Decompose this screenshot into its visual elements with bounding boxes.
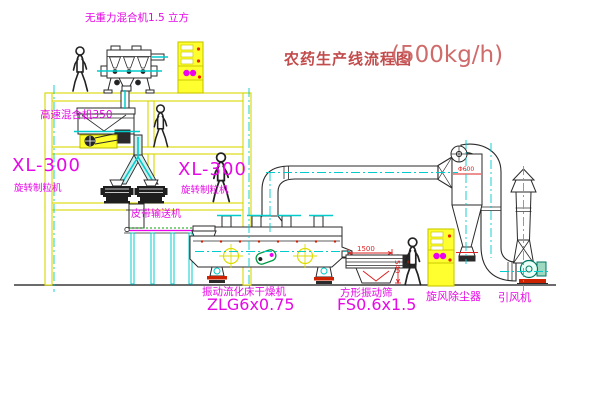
control-cabinet-right [428,229,454,286]
label-no-gravity-mixer: 无重力混合机1.5 立方 [85,13,189,24]
cad-flow-diagram: 农药生产线流程图 (500kg/h) 无重力混合机1.5 立方 高速混合机350… [0,0,600,403]
label-granulator-left-name: 旋转制粒机 [14,184,62,194]
label-granulator-right-name: 旋转制粒机 [181,186,229,196]
person-figure [73,47,88,91]
diagram-title-capacity: (500kg/h) [391,44,503,67]
label-fan: 引风机 [498,292,531,303]
label-sieve-model: FS0.6x1.5 [337,297,416,313]
person-figure [154,105,168,147]
vibrating-sieve-drawing [342,249,416,283]
label-dryer-model: ZLG6x0.75 [207,297,295,313]
cyclone-separator-drawing [451,146,482,261]
dimension-cyclone-diameter: Φ600 [458,167,474,173]
label-high-speed-mixer: 高速混合机350 [40,110,113,121]
control-cabinet-top [178,42,203,93]
label-belt-conveyor: 皮带输送机 [131,210,181,220]
label-granulator-right-model: XL-300 [178,161,247,179]
dimension-sieve-length: 1500 [357,246,375,253]
label-cyclone: 旋风除尘器 [426,291,481,302]
dimension-sieve-height: 540 [393,260,400,273]
label-granulator-left-model: XL-300 [12,157,81,175]
induced-draft-fan-drawing [517,261,548,284]
granulator-left-drawing [101,180,134,204]
granulator-right-drawing [135,180,168,204]
